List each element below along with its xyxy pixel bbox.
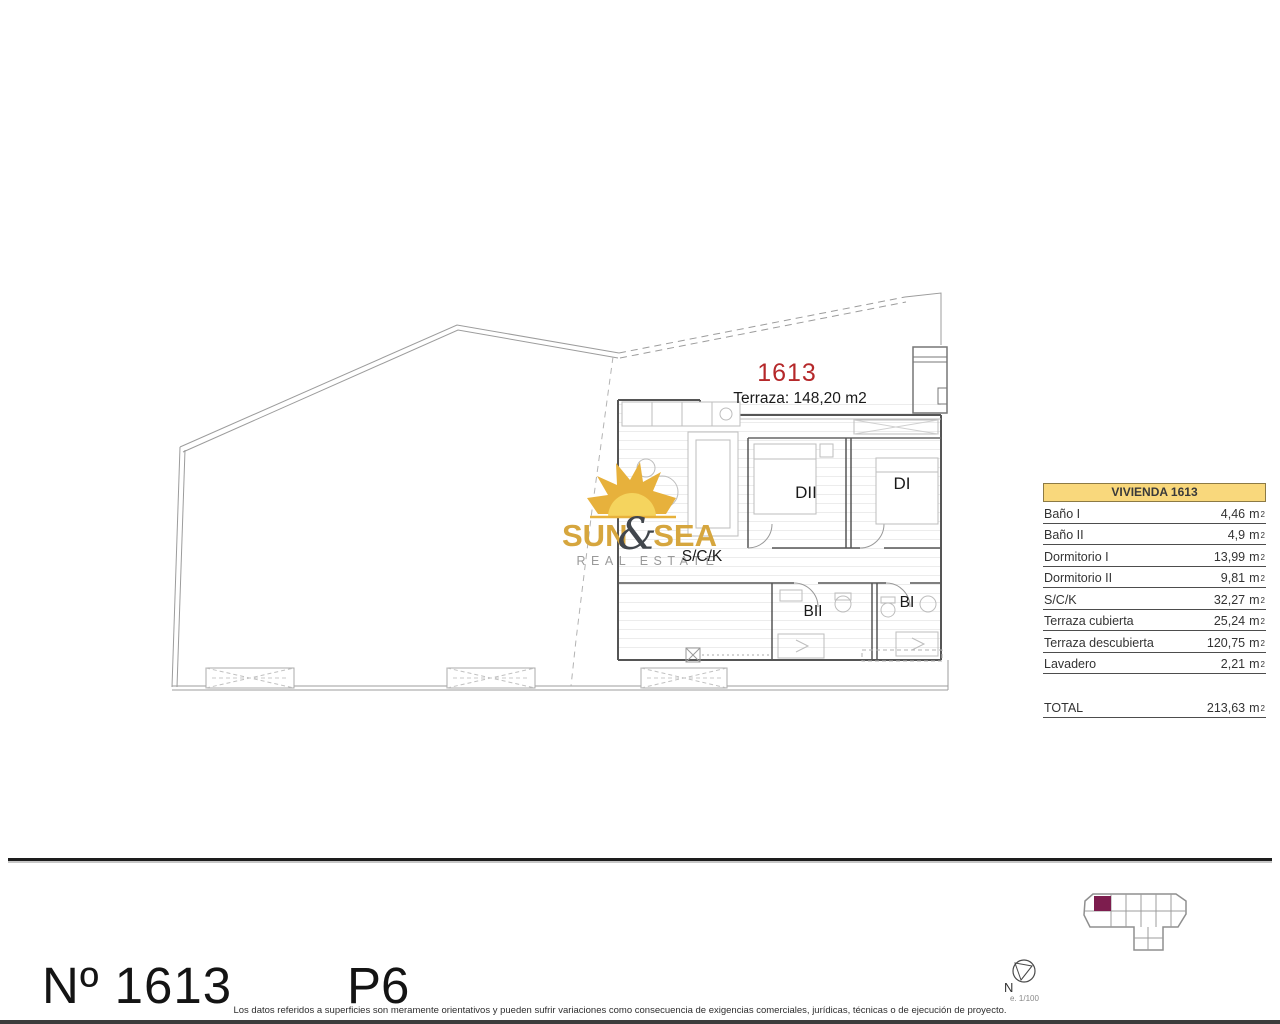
area-table-row: Terraza cubierta 25,24m2 [1043, 610, 1266, 632]
room-label-salon: S/C/K [682, 548, 723, 565]
logo-ampersand: & [617, 509, 656, 560]
area-table-row: Baño I 4,46m2 [1043, 502, 1266, 524]
row-value: 4,46m2 [1221, 507, 1265, 521]
terrace-pergolas [206, 668, 727, 688]
area-table-row: Dormitorio II 9,81m2 [1043, 567, 1266, 589]
balcony-box [913, 347, 947, 413]
page: { "colors": { "unit_number_red": "#b5282… [0, 0, 1280, 1024]
room-label-dormitorio2: DII [795, 483, 817, 502]
scale-label: e. 1/100 [1010, 994, 1039, 1003]
row-label: S/C/K [1044, 593, 1077, 607]
footer-divider-line [8, 858, 1272, 861]
area-table-row: Baño II 4,9m2 [1043, 524, 1266, 546]
row-label: Baño I [1044, 507, 1080, 521]
total-value: 213,63m2 [1207, 701, 1265, 715]
total-label: TOTAL [1044, 701, 1083, 715]
row-label: Dormitorio I [1044, 550, 1109, 564]
room-label-bano1: BI [900, 594, 915, 611]
area-table-row: Dormitorio I 13,99m2 [1043, 545, 1266, 567]
row-value: 25,24m2 [1214, 614, 1265, 628]
row-value: 13,99m2 [1214, 550, 1265, 564]
row-label: Lavadero [1044, 657, 1096, 671]
row-label: Terraza descubierta [1044, 636, 1154, 650]
room-label-dormitorio1: DI [894, 474, 911, 493]
disclaimer-text: Los datos referidos a superficies son me… [0, 1005, 1240, 1016]
area-table-total-row: TOTAL 213,63m2 [1043, 696, 1266, 718]
row-label: Baño II [1044, 528, 1084, 542]
terrace-outline [172, 293, 948, 690]
area-table: VIVIENDA 1613 Baño I 4,46m2 Baño II 4,9m… [1043, 483, 1266, 718]
area-table-row: Terraza descubierta 120,75m2 [1043, 631, 1266, 653]
minimap-highlighted-unit [1094, 896, 1111, 911]
bottom-bar [0, 1020, 1280, 1024]
row-label: Terraza cubierta [1044, 614, 1134, 628]
row-value: 32,27m2 [1214, 593, 1265, 607]
site-plan-minimap [1084, 894, 1186, 950]
area-table-row: S/C/K 32,27m2 [1043, 588, 1266, 610]
table-spacer [1043, 674, 1266, 696]
north-compass-icon [1013, 960, 1035, 982]
room-label-bano2: BII [804, 603, 823, 620]
area-table-row: Lavadero 2,21m2 [1043, 653, 1266, 675]
compass-north-label: N [1004, 980, 1013, 995]
row-value: 2,21m2 [1221, 657, 1265, 671]
row-value: 9,81m2 [1221, 571, 1265, 585]
terrace-area-label: Terraza: 148,20 m2 [733, 390, 867, 407]
row-label: Dormitorio II [1044, 571, 1112, 585]
row-value: 4,9m2 [1228, 528, 1265, 542]
row-value: 120,75m2 [1207, 636, 1265, 650]
area-table-header: VIVIENDA 1613 [1043, 483, 1266, 502]
unit-number-label: 1613 [757, 359, 817, 387]
